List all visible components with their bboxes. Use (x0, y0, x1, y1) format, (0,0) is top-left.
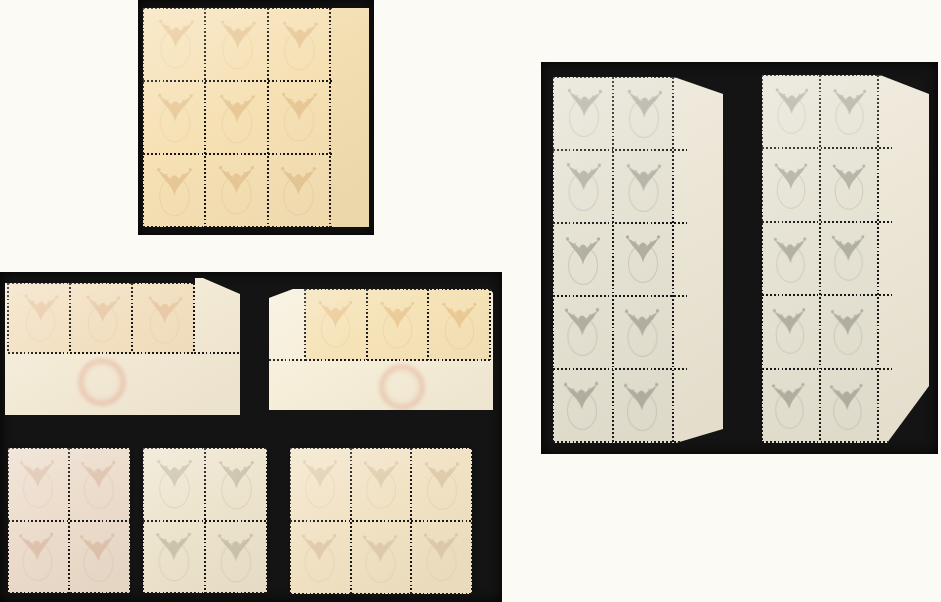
ox-head-offset-icon (15, 527, 58, 586)
perforation-line (553, 76, 687, 78)
ox-head-offset-icon (563, 232, 603, 289)
block-of-nine-with-right-selvage (143, 8, 369, 227)
perforation-line (143, 153, 334, 155)
block-of-ten-with-right-selvage-right (762, 75, 929, 443)
ox-head-offset-icon (216, 456, 257, 513)
ox-head-offset-icon (623, 230, 663, 287)
ox-head-offset-icon (143, 291, 186, 347)
ox-head-offset-icon (830, 158, 868, 215)
mount-bottom-left (0, 272, 502, 602)
ox-head-offset-icon (154, 163, 195, 220)
ox-head-offset-icon (827, 377, 868, 436)
ox-head-offset-icon (623, 84, 665, 142)
ox-head-offset-icon (154, 455, 195, 512)
ox-head-offset-icon (16, 454, 58, 512)
corner-strip-of-three-with-bottom-selvage-left (5, 278, 240, 415)
stamp (268, 81, 330, 154)
ox-head-offset-icon (154, 14, 197, 72)
stamp (268, 8, 330, 81)
ox-head-offset-icon (421, 528, 462, 586)
ox-head-offset-icon (278, 162, 319, 219)
ox-head-offset-icon (828, 303, 868, 361)
stamp (290, 448, 351, 521)
ox-head-offset-icon (829, 229, 868, 287)
ox-head-offset-icon (216, 90, 258, 148)
perforation-line (672, 77, 674, 442)
perforation-line (8, 282, 194, 284)
perforation-line (762, 368, 892, 370)
perforation-line (427, 289, 429, 360)
stamp (8, 448, 69, 521)
perforation-line (761, 75, 763, 442)
perforation-line (269, 359, 305, 361)
perforation-line (290, 520, 472, 522)
control-cachet-mark (380, 365, 424, 409)
block-of-six (290, 448, 472, 594)
perforation-line (305, 288, 490, 290)
perforation-line (553, 441, 687, 443)
perforation-line (290, 593, 472, 595)
perforation-line (366, 289, 368, 360)
perforation-line (204, 8, 206, 227)
stamp (305, 289, 367, 360)
perforation-line (553, 149, 687, 151)
stamp (351, 521, 412, 594)
stamp (553, 296, 613, 369)
stamp (132, 283, 194, 353)
stamp (367, 289, 429, 360)
ox-head-offset-icon (830, 83, 869, 141)
stamp (8, 283, 70, 353)
perforation-line (553, 222, 687, 224)
ox-head-offset-icon (770, 302, 810, 360)
ox-head-offset-icon (278, 88, 320, 146)
perforation-line (762, 147, 892, 149)
stamp (411, 448, 472, 521)
perforation-line (305, 359, 490, 361)
perforation-line (762, 74, 892, 76)
stamp (553, 223, 613, 296)
ox-head-offset-icon (563, 83, 605, 141)
stamp (613, 369, 673, 442)
stamp (762, 295, 820, 368)
perforation-line (143, 7, 334, 9)
perforation-line (143, 520, 267, 522)
stamp (143, 8, 205, 81)
stamp (205, 448, 267, 521)
perforation-line (819, 75, 821, 442)
stamp (553, 150, 613, 223)
stamp (205, 81, 267, 154)
stamp (820, 148, 878, 221)
mount-top-left (138, 0, 374, 235)
perforation-line (489, 289, 491, 360)
mount-right (541, 62, 938, 454)
stamp (762, 369, 820, 442)
stamp (290, 521, 351, 594)
stamp (205, 521, 267, 594)
corner-strip-of-three-with-bottom-selvage-right (269, 285, 493, 410)
block-of-ten-with-right-selvage-left (553, 77, 723, 443)
perforation-line (762, 294, 892, 296)
perforation-line (8, 447, 130, 449)
stamp (143, 448, 205, 521)
perforation-line (304, 289, 306, 360)
perforation-line (329, 8, 331, 227)
ox-head-offset-icon (300, 455, 340, 512)
stamp (70, 283, 132, 353)
ox-head-offset-icon (623, 159, 664, 217)
perforation-line (194, 352, 240, 354)
ox-head-offset-icon (361, 456, 401, 513)
ox-head-offset-icon (439, 298, 480, 353)
perforation-line (7, 283, 9, 353)
perforation-line (762, 441, 892, 443)
ox-head-offset-icon (562, 303, 603, 361)
perforation-line (8, 352, 194, 354)
perforation-line (143, 447, 267, 449)
stamp (268, 154, 330, 227)
ox-head-offset-icon (216, 161, 257, 218)
stamp (8, 521, 69, 594)
ox-head-offset-icon (561, 376, 603, 434)
perforation-line (143, 226, 334, 228)
stamp (351, 448, 412, 521)
stamp (613, 296, 673, 369)
stamp (205, 154, 267, 227)
stamp (820, 75, 878, 148)
perforation-line (612, 77, 614, 442)
stamp (69, 521, 130, 594)
control-cachet-mark (79, 359, 125, 405)
perforation-line (131, 283, 133, 353)
stamp (553, 369, 613, 442)
perforation-line (553, 295, 687, 297)
perforation-line (267, 8, 269, 227)
ox-head-offset-icon (299, 529, 340, 587)
ox-head-offset-icon (152, 528, 194, 586)
ox-head-offset-icon (216, 15, 259, 73)
perforation-line (552, 77, 554, 442)
ox-head-offset-icon (76, 528, 119, 587)
stamp (553, 77, 613, 150)
ox-head-offset-icon (81, 290, 124, 346)
stamp (69, 448, 130, 521)
ox-head-offset-icon (621, 377, 663, 435)
stamp (762, 222, 820, 295)
ox-head-offset-icon (360, 530, 401, 588)
stamp (411, 521, 472, 594)
ox-head-offset-icon (315, 296, 356, 351)
stamp (613, 223, 673, 296)
perforation-line (877, 75, 879, 442)
block-of-four-rose (8, 448, 130, 593)
ox-head-offset-icon (772, 82, 811, 140)
perforation-line (8, 592, 130, 594)
stamp (428, 289, 490, 360)
stamp (613, 150, 673, 223)
perforation-line (193, 283, 195, 353)
ox-head-offset-icon (622, 304, 663, 362)
ox-head-offset-icon (77, 455, 119, 513)
ox-head-offset-icon (563, 158, 604, 216)
perforation-line (553, 368, 687, 370)
ox-head-offset-icon (214, 529, 256, 587)
ox-head-offset-icon (422, 457, 462, 514)
stamp-collection-photo (0, 0, 941, 602)
stamp (143, 81, 205, 154)
ox-head-offset-icon (279, 16, 322, 74)
ox-head-offset-icon (377, 297, 418, 352)
stamp (143, 521, 205, 594)
ox-head-offset-icon (771, 231, 810, 289)
perforation-line (142, 8, 144, 227)
block-of-four-cream (143, 448, 267, 593)
stamp (613, 77, 673, 150)
stamp (820, 222, 878, 295)
perforation-line (290, 447, 472, 449)
perforation-line (762, 221, 892, 223)
ox-head-offset-icon (19, 289, 62, 345)
stamp (762, 75, 820, 148)
ox-head-offset-icon (772, 157, 810, 214)
perforation-line (8, 520, 130, 522)
ox-head-offset-icon (769, 376, 810, 435)
stamp (820, 369, 878, 442)
perforation-line (143, 592, 267, 594)
stamp (820, 295, 878, 368)
perforation-line (69, 283, 71, 353)
stamp (205, 8, 267, 81)
perforation-line (143, 80, 334, 82)
ox-head-offset-icon (154, 89, 196, 147)
stamp (143, 154, 205, 227)
stamp (762, 148, 820, 221)
